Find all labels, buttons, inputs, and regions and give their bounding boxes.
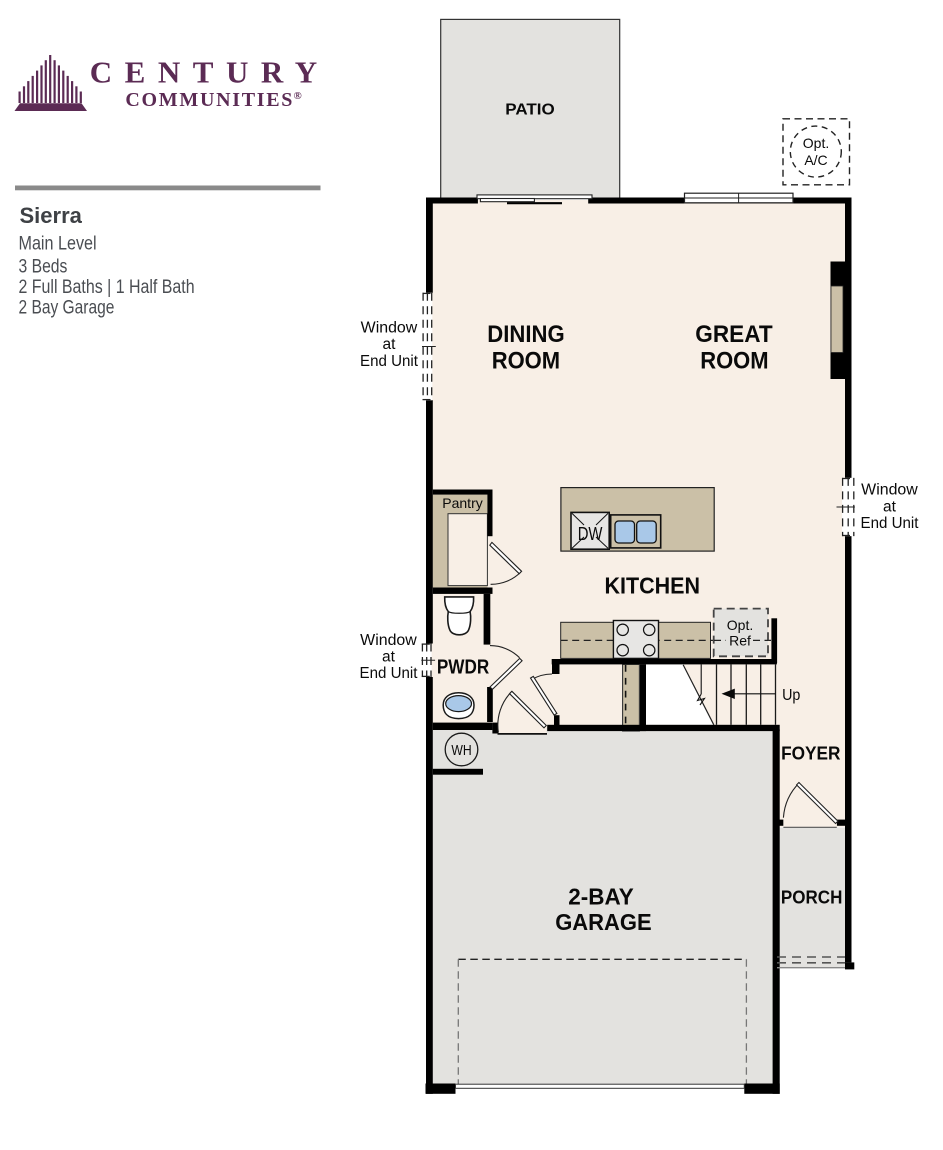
svg-text:PATIO: PATIO	[505, 101, 554, 118]
svg-text:Opt.: Opt.	[727, 617, 753, 633]
svg-text:at: at	[382, 649, 396, 666]
svg-text:End Unit: End Unit	[861, 515, 920, 532]
svg-text:Window: Window	[360, 632, 417, 649]
svg-text:A/C: A/C	[804, 152, 827, 168]
svg-text:ROOM: ROOM	[492, 348, 560, 375]
svg-text:PWDR: PWDR	[437, 656, 490, 678]
svg-text:2 Full Baths | 1 Half Bath: 2 Full Baths | 1 Half Bath	[19, 277, 195, 298]
svg-text:ROOM: ROOM	[700, 348, 768, 375]
svg-text:®: ®	[294, 90, 302, 102]
svg-text:2-BAY: 2-BAY	[568, 884, 633, 910]
svg-text:at: at	[883, 498, 897, 515]
svg-text:DINING: DINING	[487, 321, 564, 348]
svg-text:Main Level: Main Level	[19, 234, 97, 255]
svg-text:WH: WH	[451, 742, 471, 759]
svg-text:Sierra: Sierra	[20, 203, 83, 228]
svg-text:CENTURY: CENTURY	[90, 55, 317, 90]
svg-text:Pantry: Pantry	[442, 495, 482, 511]
svg-text:End Unit: End Unit	[360, 353, 419, 370]
svg-text:Ref: Ref	[729, 633, 751, 649]
svg-text:DW: DW	[578, 524, 603, 544]
svg-text:GREAT: GREAT	[695, 321, 773, 348]
svg-text:at: at	[383, 336, 397, 353]
svg-text:Opt.: Opt.	[803, 135, 829, 151]
svg-text:3 Beds: 3 Beds	[19, 257, 68, 278]
svg-text:KITCHEN: KITCHEN	[605, 572, 701, 598]
svg-text:Window: Window	[861, 482, 918, 499]
svg-text:FOYER: FOYER	[781, 742, 840, 763]
svg-text:GARAGE: GARAGE	[555, 909, 652, 935]
svg-text:2 Bay Garage: 2 Bay Garage	[19, 298, 115, 319]
svg-text:COMMUNITIES: COMMUNITIES	[125, 89, 292, 111]
svg-text:PORCH: PORCH	[781, 886, 843, 907]
svg-text:Window: Window	[361, 319, 418, 336]
svg-text:Up: Up	[782, 687, 800, 704]
svg-text:End Unit: End Unit	[360, 665, 419, 682]
